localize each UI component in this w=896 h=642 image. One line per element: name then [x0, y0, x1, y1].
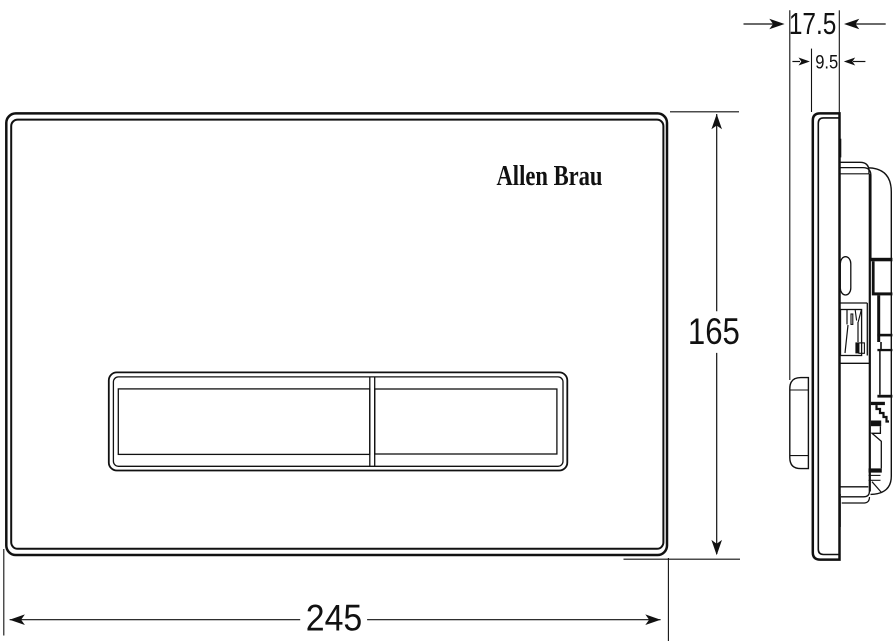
svg-text:Allen Brau: Allen Brau	[497, 161, 603, 192]
svg-text:17.5: 17.5	[789, 6, 837, 41]
svg-text:165: 165	[688, 311, 740, 352]
svg-text:245: 245	[306, 597, 363, 638]
svg-text:9.5: 9.5	[815, 51, 838, 73]
